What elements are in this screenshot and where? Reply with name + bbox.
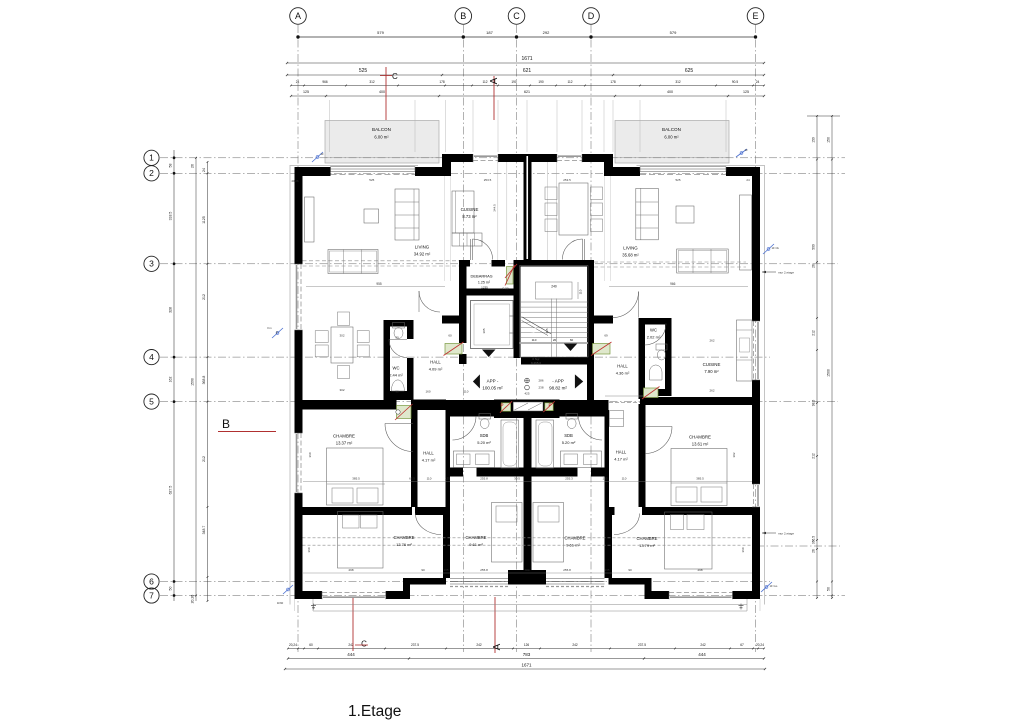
svg-text:579: 579 <box>670 30 677 35</box>
svg-text:B: B <box>460 11 466 21</box>
svg-text:4.36 m²: 4.36 m² <box>616 371 630 376</box>
svg-text:9.265.0: 9.265.0 <box>531 361 541 365</box>
svg-text:212: 212 <box>812 453 816 459</box>
svg-text:24: 24 <box>746 178 750 182</box>
svg-text:255.3: 255.3 <box>565 476 573 480</box>
svg-text:298: 298 <box>697 568 702 572</box>
svg-text:1F: 1F <box>321 152 325 156</box>
svg-text:24: 24 <box>202 168 206 172</box>
svg-text:312: 312 <box>369 80 375 84</box>
svg-text:368.8: 368.8 <box>202 376 206 385</box>
svg-text:Fm: Fm <box>268 326 273 330</box>
svg-text:13.79 m²: 13.79 m² <box>639 543 655 548</box>
svg-text:60: 60 <box>309 643 313 647</box>
svg-text:2.02 m²: 2.02 m² <box>647 335 661 340</box>
svg-text:190: 190 <box>511 80 517 84</box>
svg-text:90: 90 <box>421 568 425 572</box>
svg-text:1125: 1125 <box>202 216 206 224</box>
svg-text:4.17 m²: 4.17 m² <box>614 457 628 462</box>
svg-text:5.20 m²: 5.20 m² <box>477 440 491 445</box>
svg-text:1F60: 1F60 <box>277 601 284 605</box>
svg-text:CHAMBRE: CHAMBRE <box>689 435 711 440</box>
svg-text:966: 966 <box>322 80 328 84</box>
svg-text:WC: WC <box>393 366 400 371</box>
svg-text:242: 242 <box>476 643 482 647</box>
svg-text:125: 125 <box>743 90 749 94</box>
svg-text:302: 302 <box>732 452 736 457</box>
svg-text:135: 135 <box>602 476 607 480</box>
svg-text:SDB: SDB <box>480 433 489 438</box>
svg-text:344.5: 344.5 <box>493 204 497 212</box>
svg-text:1F Go: 1F Go <box>770 584 778 588</box>
svg-text:5: 5 <box>149 396 154 406</box>
svg-text:90: 90 <box>395 390 399 394</box>
svg-text:237.5: 237.5 <box>638 643 646 647</box>
svg-text:mur 2.etage: mur 2.etage <box>778 270 794 274</box>
svg-text:286: 286 <box>538 379 543 383</box>
svg-text:110: 110 <box>622 476 627 480</box>
svg-text:150: 150 <box>812 137 816 143</box>
svg-text:178: 178 <box>439 80 445 84</box>
svg-text:305: 305 <box>482 328 486 333</box>
svg-text:20,24: 20,24 <box>756 643 764 647</box>
svg-text:98.82 m²: 98.82 m² <box>549 386 567 391</box>
svg-text:627.5: 627.5 <box>169 486 173 495</box>
svg-text:60: 60 <box>570 338 574 342</box>
svg-text:110: 110 <box>427 476 432 480</box>
svg-text:58: 58 <box>169 164 173 168</box>
svg-text:1590: 1590 <box>191 378 195 386</box>
svg-text:F 30: F 30 <box>502 287 508 291</box>
svg-text:1F Ck: 1F Ck <box>772 246 780 250</box>
svg-text:360: 360 <box>307 547 311 552</box>
svg-text:360: 360 <box>308 452 312 457</box>
svg-text:190: 190 <box>538 80 544 84</box>
svg-text:262: 262 <box>709 339 714 343</box>
svg-text:242: 242 <box>572 643 578 647</box>
svg-text:1671: 1671 <box>521 56 532 62</box>
svg-text:162: 162 <box>169 377 173 383</box>
svg-text:20,24: 20,24 <box>289 643 297 647</box>
svg-text:966: 966 <box>670 282 676 286</box>
svg-text:253.5: 253.5 <box>484 178 492 182</box>
svg-text:7: 7 <box>149 590 154 600</box>
svg-text:67: 67 <box>740 643 744 647</box>
svg-text:312: 312 <box>675 80 681 84</box>
svg-text:5.20 m²: 5.20 m² <box>562 440 576 445</box>
svg-text:3: 3 <box>149 259 154 269</box>
svg-text:302: 302 <box>339 334 344 338</box>
svg-text:444: 444 <box>347 652 355 657</box>
svg-text:6.00 m²: 6.00 m² <box>664 135 679 140</box>
svg-text:4.09 m²: 4.09 m² <box>429 367 443 372</box>
svg-text:A: A <box>489 77 500 84</box>
svg-text:SDB: SDB <box>564 433 573 438</box>
svg-text:780: 780 <box>524 568 529 572</box>
svg-text:112: 112 <box>567 80 572 84</box>
svg-text:APP -: APP - <box>487 379 499 384</box>
svg-text:100.05 m²: 100.05 m² <box>482 386 503 391</box>
svg-text:135: 135 <box>443 568 448 572</box>
svg-text:34.92 m²: 34.92 m² <box>414 252 431 257</box>
svg-text:4.17 m²: 4.17 m² <box>422 458 436 463</box>
svg-text:444: 444 <box>698 652 706 657</box>
svg-text:D: D <box>588 11 595 21</box>
svg-text:135: 135 <box>445 476 450 480</box>
svg-text:CHAMBRE: CHAMBRE <box>565 536 586 541</box>
svg-text:HALL: HALL <box>616 450 627 455</box>
svg-text:348.7: 348.7 <box>202 526 206 535</box>
svg-text:90: 90 <box>395 336 399 340</box>
svg-text:P: P <box>500 403 503 408</box>
svg-text:13.61 m²: 13.61 m² <box>692 442 709 447</box>
svg-text:CHAMBRE: CHAMBRE <box>394 535 415 540</box>
svg-text:9.61 m²: 9.61 m² <box>469 542 483 547</box>
svg-text:- APP: - APP <box>552 379 564 384</box>
svg-text:1500: 1500 <box>827 369 831 377</box>
svg-text:BALCON: BALCON <box>372 127 391 132</box>
svg-text:C: C <box>513 11 520 21</box>
svg-text:783: 783 <box>523 652 531 657</box>
svg-text:500: 500 <box>812 244 816 250</box>
svg-text:63.5: 63.5 <box>409 476 415 480</box>
svg-text:WC: WC <box>650 328 657 333</box>
svg-text:366.5: 366.5 <box>812 536 816 544</box>
svg-text:318.5: 318.5 <box>169 212 173 221</box>
svg-text:238: 238 <box>538 386 543 390</box>
svg-text:98.5: 98.5 <box>812 400 816 407</box>
svg-text:C: C <box>392 72 398 81</box>
svg-text:525: 525 <box>359 68 368 74</box>
svg-text:298: 298 <box>348 568 353 572</box>
svg-text:400: 400 <box>379 90 385 94</box>
svg-text:CHAMBRE: CHAMBRE <box>333 434 355 439</box>
svg-text:4: 4 <box>149 352 154 362</box>
svg-text:625: 625 <box>685 68 694 74</box>
svg-text:DEBARRAS: DEBARRAS <box>470 274 492 279</box>
svg-text:2.44 m²: 2.44 m² <box>389 373 403 378</box>
svg-text:6: 6 <box>149 576 154 586</box>
svg-text:1F: 1F <box>745 148 749 152</box>
svg-text:255.8: 255.8 <box>480 476 488 480</box>
svg-text:CHAMBRE: CHAMBRE <box>466 535 487 540</box>
svg-text:20: 20 <box>553 338 557 342</box>
svg-text:20,26: 20,26 <box>191 595 195 604</box>
svg-text:CUISINE: CUISINE <box>461 207 479 212</box>
svg-text:HALL: HALL <box>617 364 628 369</box>
svg-text:HALL: HALL <box>430 360 441 365</box>
svg-text:425: 425 <box>524 392 529 396</box>
svg-text:26: 26 <box>812 264 816 268</box>
svg-text:621: 621 <box>524 90 530 94</box>
svg-text:400: 400 <box>667 90 673 94</box>
svg-text:1671: 1671 <box>521 663 532 668</box>
svg-text:60: 60 <box>448 334 452 338</box>
svg-text:255.8: 255.8 <box>480 568 488 572</box>
svg-text:CHAMBRE: CHAMBRE <box>637 536 658 541</box>
svg-text:24: 24 <box>296 80 300 84</box>
svg-text:212: 212 <box>812 330 816 336</box>
svg-text:P: P <box>548 403 551 408</box>
svg-text:26: 26 <box>191 164 195 168</box>
svg-text:237.5: 237.5 <box>411 643 419 647</box>
svg-text:1235: 1235 <box>481 286 488 290</box>
svg-text:262: 262 <box>709 389 714 393</box>
svg-text:385.5: 385.5 <box>696 476 704 480</box>
svg-text:69: 69 <box>604 334 608 338</box>
svg-text:C: C <box>361 640 367 649</box>
svg-text:50: 50 <box>169 587 173 591</box>
svg-text:9.61 m²: 9.61 m² <box>566 543 580 548</box>
svg-text:24: 24 <box>756 80 760 84</box>
svg-text:579: 579 <box>377 30 384 35</box>
svg-text:328: 328 <box>169 307 173 313</box>
svg-text:212: 212 <box>202 294 206 300</box>
svg-text:135: 135 <box>604 568 609 572</box>
svg-text:110: 110 <box>464 390 469 394</box>
svg-text:B: B <box>222 417 230 431</box>
svg-text:30.5: 30.5 <box>514 476 520 480</box>
svg-text:13.37 m²: 13.37 m² <box>336 441 353 446</box>
svg-text:385.5: 385.5 <box>352 476 360 480</box>
svg-text:35.68 m²: 35.68 m² <box>622 253 639 258</box>
svg-text:212: 212 <box>202 456 206 462</box>
svg-text:26: 26 <box>812 549 816 553</box>
svg-text:8.73 m²: 8.73 m² <box>462 214 477 219</box>
svg-text:1: 1 <box>149 153 154 163</box>
svg-text:178: 178 <box>610 80 616 84</box>
svg-text:1.25 m²: 1.25 m² <box>478 281 491 285</box>
svg-text:110: 110 <box>532 338 537 342</box>
svg-text:110: 110 <box>579 289 583 294</box>
svg-text:302: 302 <box>339 388 344 392</box>
svg-text:HALL: HALL <box>423 451 434 456</box>
svg-text:525: 525 <box>675 178 680 182</box>
svg-text:160: 160 <box>425 390 430 394</box>
svg-text:LIVING: LIVING <box>623 246 638 251</box>
svg-text:253.5: 253.5 <box>563 178 571 182</box>
svg-text:20,26: 20,26 <box>292 179 299 183</box>
svg-text:A: A <box>295 11 301 21</box>
svg-text:BALCON: BALCON <box>662 127 681 132</box>
svg-text:90.5: 90.5 <box>732 80 738 84</box>
svg-text:525: 525 <box>369 178 374 182</box>
svg-text:2: 2 <box>149 168 154 178</box>
svg-text:A: A <box>492 643 503 650</box>
svg-text:7.90 m²: 7.90 m² <box>704 369 719 374</box>
svg-text:50: 50 <box>827 587 831 591</box>
svg-text:125: 125 <box>303 90 309 94</box>
svg-text:126: 126 <box>524 643 530 647</box>
svg-text:150: 150 <box>827 137 831 143</box>
svg-text:187: 187 <box>486 30 493 35</box>
svg-text:292: 292 <box>543 30 550 35</box>
svg-text:90: 90 <box>628 568 632 572</box>
svg-text:360: 360 <box>741 547 745 552</box>
svg-text:6.00 m²: 6.00 m² <box>374 135 389 140</box>
svg-text:112: 112 <box>482 80 487 84</box>
svg-text:242: 242 <box>700 643 706 647</box>
svg-text:305: 305 <box>545 328 549 333</box>
svg-text:255.8: 255.8 <box>563 568 571 572</box>
svg-text:CUISINE: CUISINE <box>703 362 721 367</box>
svg-text:13.76 m²: 13.76 m² <box>396 542 412 547</box>
svg-text:mur 2.etage: mur 2.etage <box>778 531 794 535</box>
svg-text:621: 621 <box>523 68 532 74</box>
svg-text:955: 955 <box>376 282 382 286</box>
svg-text:1.Etage: 1.Etage <box>348 703 401 720</box>
svg-text:E: E <box>752 11 758 21</box>
svg-text:LIVING: LIVING <box>415 245 430 250</box>
svg-text:240: 240 <box>551 285 557 289</box>
